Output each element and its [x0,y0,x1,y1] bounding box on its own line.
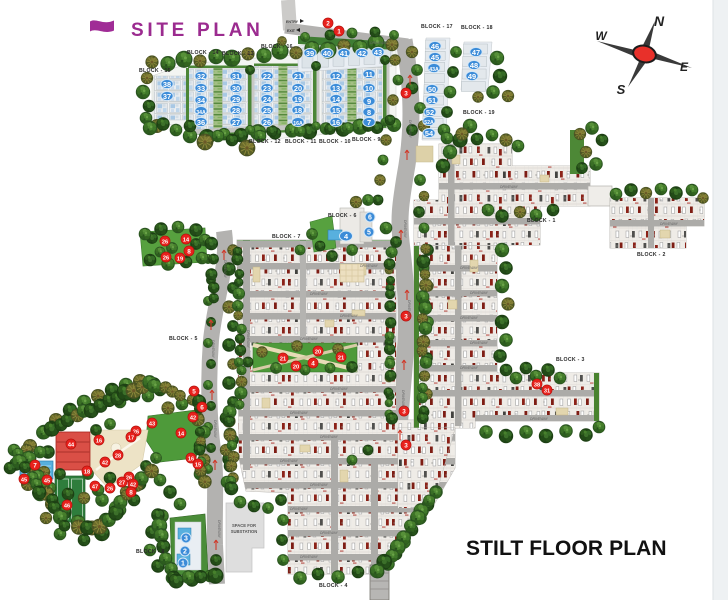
svg-text:DRIVEWAY: DRIVEWAY [246,330,250,349]
svg-text:5: 5 [367,230,371,237]
svg-text:38: 38 [163,80,171,89]
svg-text:45: 45 [431,53,439,62]
svg-text:20: 20 [315,349,321,355]
svg-text:15: 15 [332,106,340,115]
svg-text:BLOCK - 6: BLOCK - 6 [328,213,357,219]
svg-text:37: 37 [163,92,171,101]
svg-text:51: 51 [428,96,436,105]
svg-text:10: 10 [365,84,373,93]
svg-text:BLOCK - 19: BLOCK - 19 [463,110,495,116]
svg-text:BLOCK - 17: BLOCK - 17 [421,24,453,30]
svg-text:BLOCK - 7: BLOCK - 7 [272,234,301,240]
svg-text:BLOCK - 13: BLOCK - 13 [222,51,254,57]
svg-text:30: 30 [232,84,240,93]
svg-text:23: 23 [263,84,271,93]
svg-text:BLOCK - 16: BLOCK - 16 [261,44,293,50]
svg-text:DRIVEWAY: DRIVEWAY [470,291,489,295]
svg-text:BLOCK - 4: BLOCK - 4 [319,583,348,589]
svg-text:2: 2 [326,20,330,27]
svg-text:26: 26 [162,239,168,245]
svg-text:BLOCK - 15: BLOCK - 15 [139,68,171,74]
svg-text:15: 15 [195,462,201,468]
svg-text:45: 45 [44,478,50,484]
svg-text:DRIVEWAY: DRIVEWAY [300,337,319,341]
svg-text:43A: 43A [429,67,439,73]
svg-text:12: 12 [332,72,340,81]
svg-text:DRIVEWAY: DRIVEWAY [360,264,379,268]
svg-text:38: 38 [534,382,540,388]
svg-text:9: 9 [367,97,371,106]
svg-text:13: 13 [332,84,340,93]
svg-text:43: 43 [374,48,382,57]
svg-text:45: 45 [21,477,27,483]
svg-text:26: 26 [107,486,113,492]
svg-text:SITE PLAN: SITE PLAN [131,20,264,41]
svg-text:28: 28 [232,106,240,115]
svg-text:8: 8 [187,248,191,255]
svg-text:33: 33 [197,84,205,93]
svg-text:47: 47 [472,48,480,57]
svg-text:19: 19 [177,256,183,262]
svg-text:BLOCK - 10: BLOCK - 10 [319,139,351,145]
svg-text:31: 31 [544,388,550,394]
svg-text:BLOCK - 3: BLOCK - 3 [556,357,585,363]
svg-text:SUBSTATION: SUBSTATION [231,529,258,534]
svg-text:20: 20 [293,364,299,370]
svg-text:39: 39 [306,49,314,58]
svg-text:14: 14 [183,237,190,243]
svg-text:BLOCK - 9: BLOCK - 9 [352,137,381,143]
svg-text:14: 14 [178,431,185,437]
svg-text:3: 3 [184,536,188,543]
svg-text:N: N [654,13,665,29]
svg-text:3: 3 [404,442,408,449]
svg-text:16A: 16A [293,121,303,127]
svg-text:27: 27 [119,480,125,486]
svg-text:S: S [617,82,626,97]
svg-text:DRIVEWAY: DRIVEWAY [460,266,479,270]
svg-text:27: 27 [232,118,240,127]
svg-text:DRIVEWAY: DRIVEWAY [407,300,411,319]
svg-text:DRIVEWAY: DRIVEWAY [280,459,299,463]
svg-text:6: 6 [200,404,204,411]
svg-text:41: 41 [340,49,348,58]
svg-text:DRIVEWAY: DRIVEWAY [213,420,217,439]
svg-text:1: 1 [337,28,341,35]
svg-text:52: 52 [426,108,434,117]
svg-text:DRIVEWAY: DRIVEWAY [320,435,339,439]
svg-text:17: 17 [128,435,134,441]
svg-text:E: E [680,60,689,74]
svg-text:5: 5 [192,388,196,395]
svg-text:48: 48 [470,61,478,70]
svg-text:11: 11 [365,70,373,79]
svg-text:42: 42 [190,415,196,421]
svg-text:25: 25 [263,106,271,115]
svg-text:54: 54 [425,129,434,138]
svg-text:26: 26 [163,255,169,261]
svg-text:DRIVEWAY: DRIVEWAY [310,483,329,487]
svg-text:18: 18 [84,469,90,475]
svg-text:DRIVEWAY: DRIVEWAY [300,555,319,559]
svg-text:BLOCK - 1: BLOCK - 1 [527,218,556,224]
svg-text:50: 50 [428,85,436,94]
svg-text:DRIVEWAY: DRIVEWAY [310,292,329,296]
svg-text:21: 21 [338,355,344,361]
svg-text:14: 14 [332,95,341,104]
svg-text:DRIVEWAY: DRIVEWAY [408,120,412,139]
svg-text:8: 8 [129,489,133,496]
svg-text:7: 7 [33,462,37,469]
svg-text:21: 21 [294,72,302,81]
svg-text:DRIVEWAY: DRIVEWAY [460,316,479,320]
svg-text:31: 31 [232,72,240,81]
svg-text:DRIVEWAY: DRIVEWAY [660,222,679,226]
svg-text:DRIVEWAY: DRIVEWAY [500,185,519,189]
svg-text:2: 2 [183,549,187,556]
svg-text:47: 47 [92,484,98,490]
svg-text:DRIVEWAY: DRIVEWAY [340,314,359,318]
svg-text:DRIVEWAY: DRIVEWAY [370,41,389,45]
svg-text:7: 7 [367,118,371,127]
svg-text:DRIVEWAY: DRIVEWAY [401,390,405,409]
svg-text:STILT FLOOR PLAN: STILT FLOOR PLAN [466,537,667,560]
svg-text:DRIVEWAY: DRIVEWAY [217,520,221,539]
svg-text:18: 18 [294,106,302,115]
svg-text:DRIVEWAY: DRIVEWAY [290,507,309,511]
svg-text:16: 16 [188,456,194,462]
svg-text:24: 24 [263,95,272,104]
svg-text:BLOCK - 11: BLOCK - 11 [285,139,317,145]
svg-text:W: W [595,29,608,43]
svg-text:BLOCK - 5: BLOCK - 5 [169,336,198,342]
svg-text:22: 22 [263,72,271,81]
svg-text:DRIVEWAY: DRIVEWAY [223,260,227,279]
svg-text:44: 44 [68,442,75,448]
svg-text:20: 20 [294,84,302,93]
svg-text:DRIVEWAY: DRIVEWAY [320,531,339,535]
svg-text:42: 42 [358,49,366,58]
svg-text:43: 43 [149,421,155,427]
svg-text:36: 36 [197,118,205,127]
svg-text:1: 1 [181,561,185,568]
svg-text:ENTRY: ENTRY [286,20,299,24]
svg-text:DRIVEWAY: DRIVEWAY [403,220,407,239]
svg-text:34: 34 [197,96,206,105]
svg-text:49: 49 [468,72,476,81]
svg-text:DRIVEWAY: DRIVEWAY [330,387,349,391]
svg-text:BLOCK - 18: BLOCK - 18 [461,25,493,31]
svg-text:DRIVEWAY: DRIVEWAY [290,411,309,415]
svg-text:16: 16 [332,118,340,127]
svg-text:40: 40 [323,49,331,58]
svg-text:21: 21 [280,356,286,362]
svg-text:32: 32 [197,72,205,81]
svg-text:3: 3 [402,408,406,415]
svg-text:42: 42 [102,460,108,466]
svg-text:26: 26 [263,118,271,127]
svg-text:DRIVEWAY: DRIVEWAY [470,341,489,345]
svg-text:3: 3 [404,90,408,97]
svg-text:BLOCK - 2: BLOCK - 2 [637,252,666,258]
svg-text:34A: 34A [196,110,206,116]
svg-text:BLOCK - 12: BLOCK - 12 [249,139,281,145]
svg-text:DRIVEWAY: DRIVEWAY [211,340,215,359]
svg-text:BLOCK - 14: BLOCK - 14 [187,50,219,56]
svg-text:6: 6 [368,215,372,222]
svg-text:19: 19 [294,95,302,104]
svg-text:46: 46 [431,42,439,51]
svg-text:DRIVEWAY: DRIVEWAY [530,417,549,421]
svg-text:28: 28 [115,453,121,459]
svg-text:EXIT: EXIT [287,29,296,33]
svg-text:DRIVEWAY: DRIVEWAY [460,366,479,370]
svg-text:8: 8 [367,108,371,117]
svg-text:46: 46 [64,503,70,509]
svg-text:SPACE FOR: SPACE FOR [232,523,256,528]
svg-text:BLOCK - 8: BLOCK - 8 [136,549,165,555]
svg-text:52A: 52A [424,120,434,126]
svg-text:4: 4 [311,360,315,367]
svg-text:29: 29 [232,95,240,104]
svg-text:16: 16 [96,438,102,444]
